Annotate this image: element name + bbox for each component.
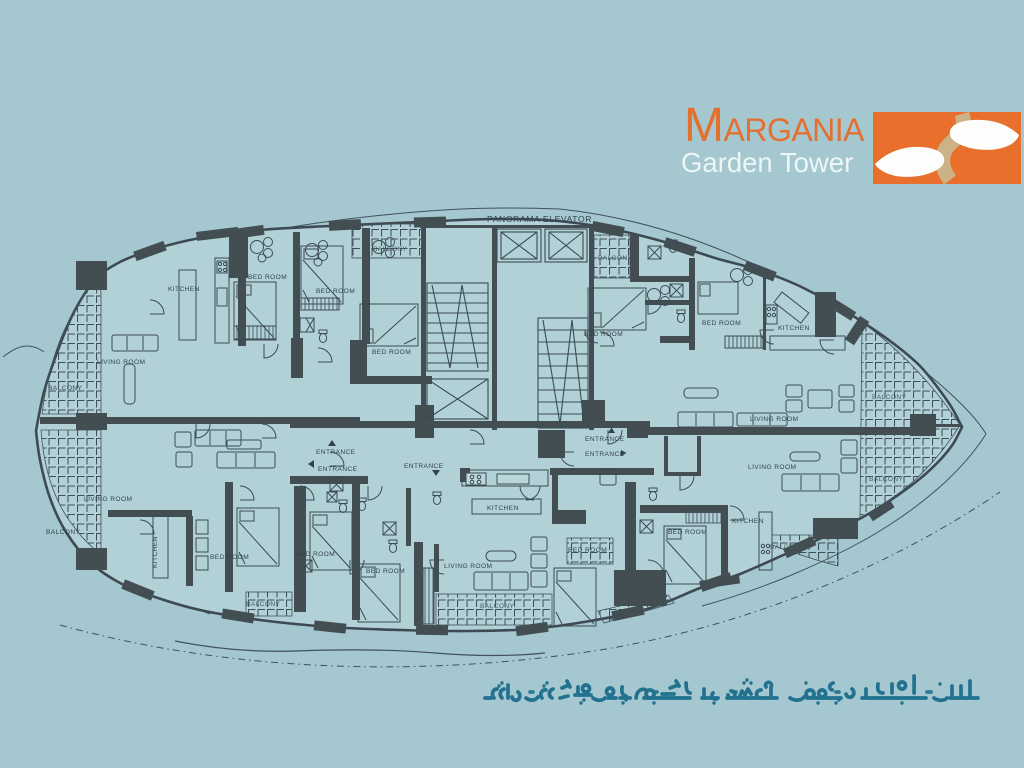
svg-text:BED ROOM: BED ROOM [210, 554, 249, 561]
svg-text:BALCONY: BALCONY [770, 544, 805, 551]
svg-text:ENTRANCE: ENTRANCE [585, 451, 625, 458]
svg-text:KITCHEN: KITCHEN [168, 286, 200, 293]
svg-text:KITCHEN: KITCHEN [732, 518, 764, 525]
svg-text:BALCONY: BALCONY [373, 246, 408, 253]
svg-text:LIVING ROOM: LIVING ROOM [84, 496, 132, 503]
svg-text:LIVING ROOM: LIVING ROOM [444, 563, 492, 570]
svg-text:BED ROOM: BED ROOM [366, 568, 405, 575]
svg-text:KITCHEN: KITCHEN [487, 505, 519, 512]
svg-text:BED ROOM: BED ROOM [668, 529, 707, 536]
svg-text:BED ROOM: BED ROOM [568, 547, 607, 554]
svg-text:ENTRANCE: ENTRANCE [318, 466, 358, 473]
svg-text:BALCONY: BALCONY [48, 385, 83, 392]
svg-text:LIVING ROOM: LIVING ROOM [748, 464, 796, 471]
svg-text:LIVING ROOM: LIVING ROOM [750, 416, 798, 423]
svg-text:BALCONY: BALCONY [246, 601, 281, 608]
svg-text:BALCONY: BALCONY [598, 255, 633, 262]
svg-text:BED ROOM: BED ROOM [316, 288, 355, 295]
svg-text:BED ROOM: BED ROOM [248, 274, 287, 281]
svg-text:BALCONY: BALCONY [869, 476, 904, 483]
svg-text:BALCONY: BALCONY [480, 603, 515, 610]
svg-text:BED ROOM: BED ROOM [296, 551, 335, 558]
svg-text:ENTRANCE: ENTRANCE [404, 463, 444, 470]
svg-text:BED ROOM: BED ROOM [372, 349, 411, 356]
svg-text:BALCONY: BALCONY [872, 394, 907, 401]
svg-text:BALCONY: BALCONY [46, 529, 81, 536]
svg-text:Garden Tower: Garden Tower [681, 147, 853, 178]
svg-text:KITCHEN: KITCHEN [152, 536, 159, 568]
svg-text:LIVING ROOM: LIVING ROOM [97, 359, 145, 366]
svg-text:KITCHEN: KITCHEN [778, 325, 810, 332]
svg-text:ENTRANCE: ENTRANCE [585, 436, 625, 443]
svg-text:BED ROOM: BED ROOM [702, 320, 741, 327]
svg-text:ENTRANCE: ENTRANCE [316, 449, 356, 456]
svg-text:PANORAMA ELEVATOR: PANORAMA ELEVATOR [487, 214, 592, 224]
svg-text:BED ROOM: BED ROOM [584, 331, 623, 338]
